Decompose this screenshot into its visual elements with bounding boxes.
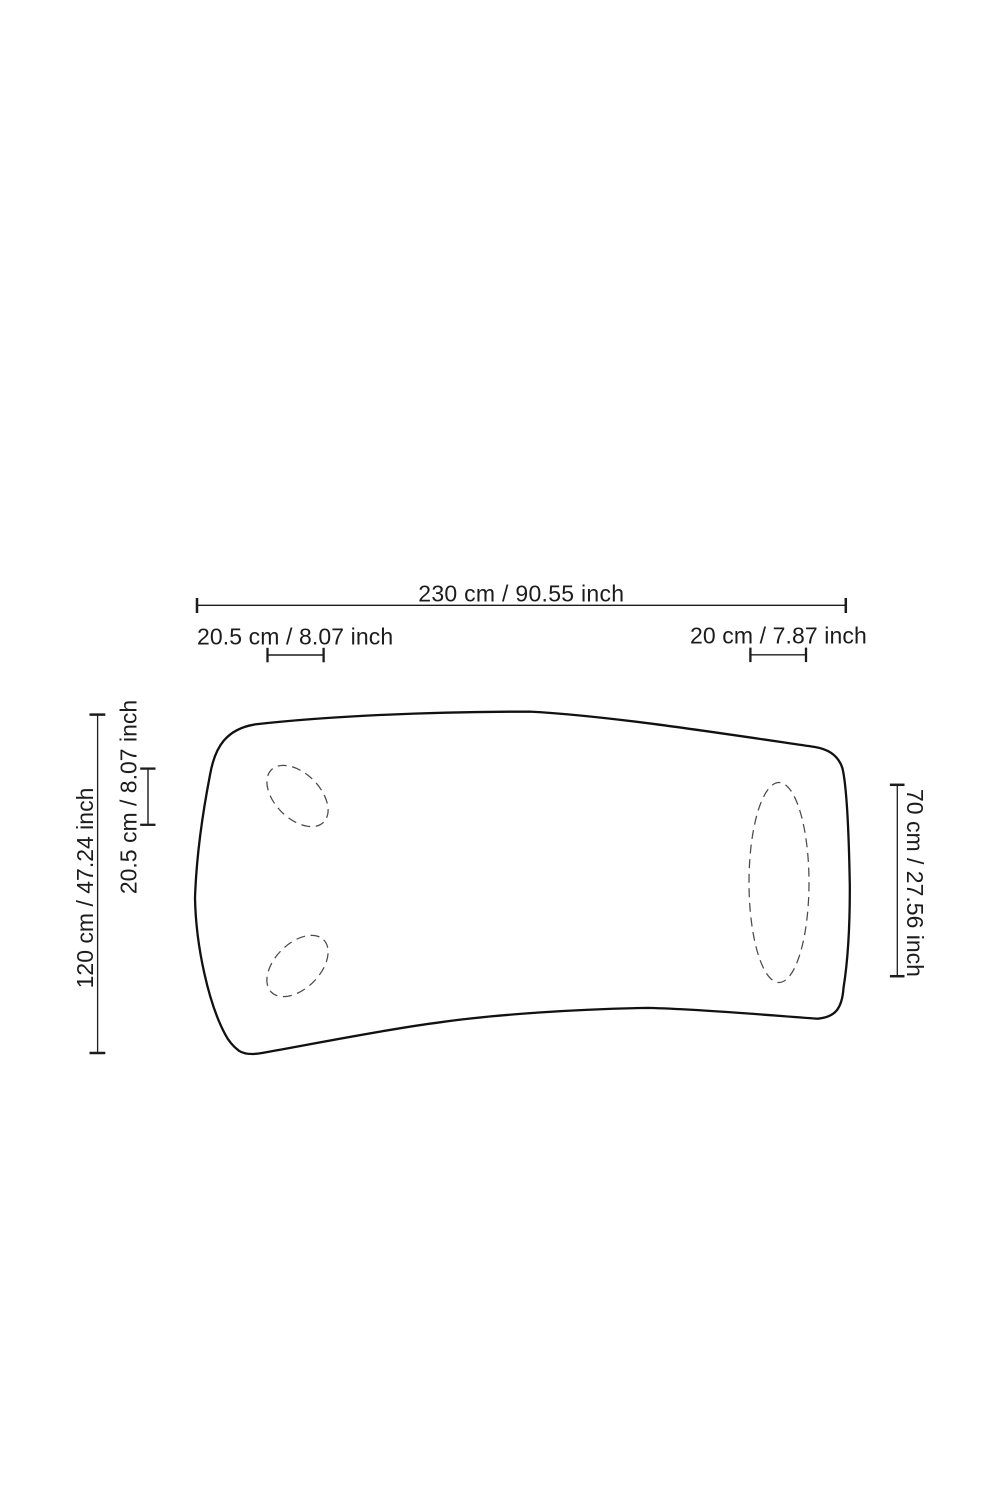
svg-text:20 cm / 7.87 inch: 20 cm / 7.87 inch — [690, 623, 867, 649]
svg-text:230 cm / 90.55 inch: 230 cm / 90.55 inch — [418, 581, 624, 607]
svg-text:70 cm / 27.56 inch: 70 cm / 27.56 inch — [902, 789, 928, 977]
svg-text:20.5 cm / 8.07 inch: 20.5 cm / 8.07 inch — [116, 700, 142, 894]
svg-text:20.5 cm / 8.07 inch: 20.5 cm / 8.07 inch — [197, 624, 393, 650]
svg-text:120 cm / 47.24 inch: 120 cm / 47.24 inch — [72, 788, 98, 989]
